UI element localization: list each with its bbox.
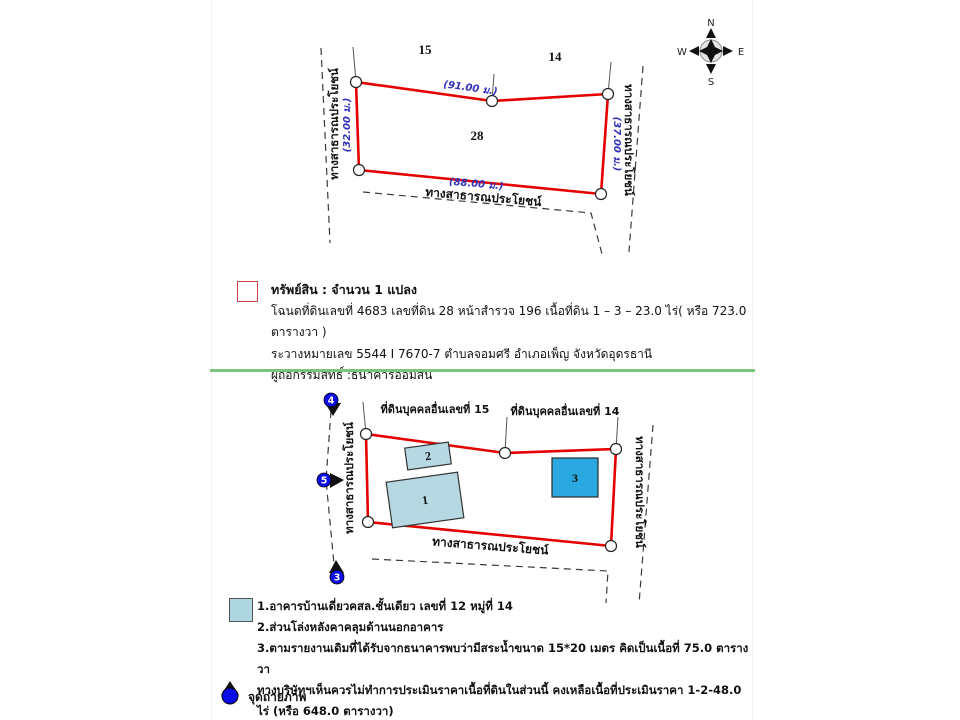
road-label-right: ทางสาธารณประโยชน์ — [622, 84, 637, 196]
photo-point-4-number: 4 — [328, 396, 335, 407]
compass-rose-icon: N S W E — [677, 18, 744, 88]
legend-note-3: 3.ตามรายงานเดิมที่ได้รับจากธนาคารพบว่ามี… — [257, 638, 757, 680]
building-legend-blue-square — [229, 598, 253, 622]
building-3-number: 3 — [572, 471, 578, 485]
green-divider-line — [210, 369, 755, 372]
building-3-pond: 3 — [552, 458, 598, 497]
property-location-line: ระวางหมายเลข 5544 I 7670-7 ตำบลจอมศรี อำ… — [271, 344, 751, 366]
property-title: ทรัพย์สิน : จำนวน 1 แปลง — [271, 279, 751, 301]
compass-n-label: N — [707, 18, 714, 29]
adjacent-plot-14-label: 14 — [549, 49, 563, 64]
photo-point-marker-3: 3 — [329, 560, 344, 584]
photo-point-marker-5: 5 — [317, 473, 344, 488]
photo-point-5-number: 5 — [321, 476, 328, 487]
photo-point-3-number: 3 — [334, 573, 341, 584]
compass-star — [699, 39, 723, 63]
length-right-label: (37.00 ม.) — [611, 117, 622, 172]
road-label-left-2: ทางสาธารณประโยชน์ — [341, 422, 356, 534]
building-1: 1 — [386, 472, 464, 528]
photo-point-legend-label: จุดถ่ายภาพ — [248, 688, 306, 707]
legend-note-4: ทางบริษัทฯเห็นควรไม่ทำการประเมินราคาเนื้… — [257, 680, 757, 720]
photo-point-marker-4: 4 — [324, 393, 341, 416]
road-label-left: ทางสาธารณประโยชน์ — [326, 68, 341, 180]
adjacent-plot-15-label: 15 — [419, 42, 433, 57]
legend-notes: 1.อาคารบ้านเดี่ยวคสล.ชั้นเดียว เลขที่ 12… — [257, 596, 757, 720]
legend-note-1: 1.อาคารบ้านเดี่ยวคสล.ชั้นเดียว เลขที่ 12… — [257, 596, 757, 617]
property-deed-line: โฉนดที่ดินเลขที่ 4683 เลขที่ดิน 28 หน้าส… — [271, 301, 751, 344]
length-left-label: (32.00 ม.) — [342, 98, 353, 153]
parcel-diagram-top: 15 14 28 (91.00 ม.) (88.00 ม.) (32.00 ม.… — [321, 42, 643, 254]
legend-note-2: 2.ส่วนโล่งหลังคาคลุมด้านนอกอาคาร — [257, 617, 757, 638]
neighbor-plot-15-label: ที่ดินบุคคลอื่นเลขที่ 15 — [381, 401, 490, 417]
property-legend-red-square — [237, 281, 258, 302]
compass-e-label: E — [738, 47, 744, 58]
neighbor-plot-14-label: ที่ดินบุคคลอื่นเลขที่ 14 — [511, 403, 620, 419]
building-2: 2 — [405, 442, 452, 470]
road-label-right-2: ทางสาธารณประโยชน์ — [633, 436, 648, 548]
plot-number-label: 28 — [471, 128, 485, 143]
compass-w-label: W — [677, 47, 687, 58]
parcel-diagram-bottom: 1 2 3 4 5 — [317, 393, 653, 604]
photo-point-legend-icon — [221, 681, 239, 704]
compass-s-label: S — [708, 77, 714, 88]
survey-document-page: 15 14 28 (91.00 ม.) (88.00 ม.) (32.00 ม.… — [0, 0, 960, 720]
